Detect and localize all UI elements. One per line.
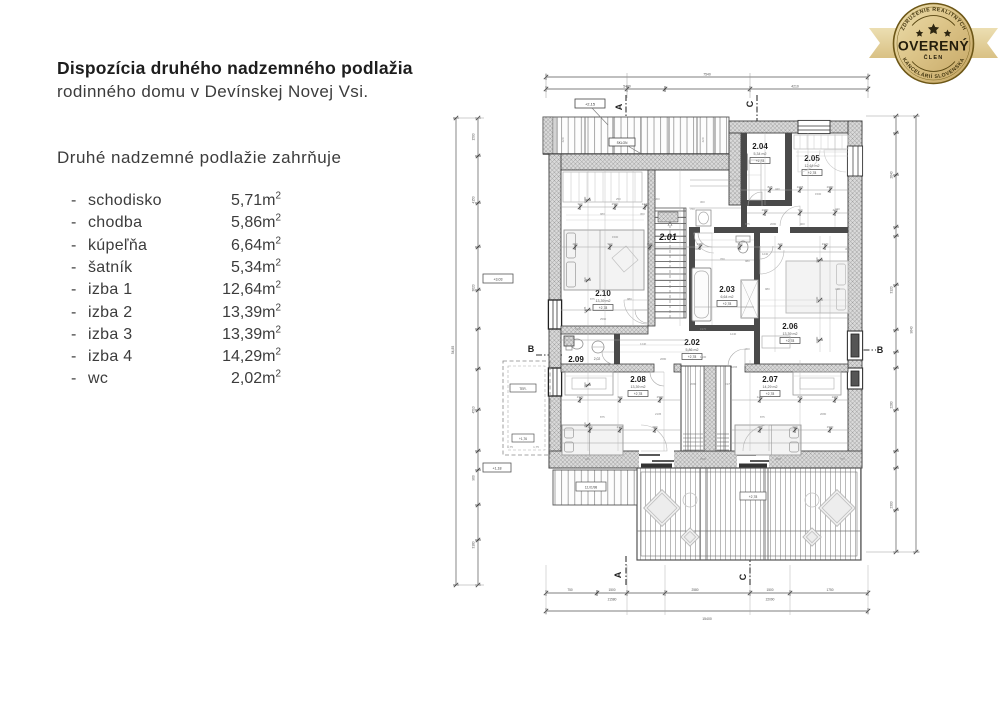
svg-text:6,64 m2: 6,64 m2 bbox=[721, 295, 734, 299]
svg-text:5,86 m2: 5,86 m2 bbox=[686, 348, 699, 352]
svg-text:440: 440 bbox=[835, 287, 840, 291]
svg-text:440: 440 bbox=[585, 457, 590, 461]
svg-text:C: C bbox=[745, 100, 755, 107]
svg-text:1240: 1240 bbox=[640, 342, 647, 346]
svg-text:2080: 2080 bbox=[770, 222, 777, 226]
svg-text:1750: 1750 bbox=[826, 588, 833, 592]
svg-text:+2,78: +2,78 bbox=[756, 159, 765, 163]
svg-text:300: 300 bbox=[700, 200, 705, 204]
svg-text:875: 875 bbox=[590, 297, 595, 301]
svg-text:+2,78: +2,78 bbox=[723, 302, 732, 306]
svg-text:2080: 2080 bbox=[690, 382, 697, 386]
svg-text:300: 300 bbox=[617, 395, 622, 399]
svg-text:2.01: 2.01 bbox=[658, 232, 677, 242]
svg-text:960: 960 bbox=[472, 475, 476, 481]
svg-text:875: 875 bbox=[745, 222, 750, 226]
svg-text:2680: 2680 bbox=[827, 185, 834, 189]
svg-text:1500: 1500 bbox=[608, 588, 615, 592]
svg-text:1970: 1970 bbox=[577, 395, 584, 399]
svg-text:4510: 4510 bbox=[472, 406, 476, 413]
svg-text:13,39 m2: 13,39 m2 bbox=[596, 299, 611, 303]
svg-text:TER.: TER. bbox=[519, 387, 526, 391]
svg-text:980: 980 bbox=[627, 297, 632, 301]
svg-text:250: 250 bbox=[572, 242, 577, 246]
svg-text:4210: 4210 bbox=[791, 85, 799, 89]
svg-text:2.09: 2.09 bbox=[568, 355, 584, 364]
svg-text:900: 900 bbox=[800, 222, 805, 226]
svg-text:2280: 2280 bbox=[890, 401, 894, 408]
svg-text:+2,78: +2,78 bbox=[688, 355, 697, 359]
svg-text:SKLON: SKLON bbox=[617, 141, 629, 145]
svg-text:+1,18: +1,18 bbox=[492, 467, 501, 471]
svg-text:1500: 1500 bbox=[766, 588, 773, 592]
svg-text:15400: 15400 bbox=[702, 617, 712, 621]
svg-text:2105: 2105 bbox=[583, 306, 587, 313]
svg-text:4150: 4150 bbox=[472, 196, 476, 203]
svg-text:1240: 1240 bbox=[757, 395, 764, 399]
svg-text:875: 875 bbox=[760, 415, 765, 419]
svg-text:1970: 1970 bbox=[725, 382, 732, 386]
svg-text:2680: 2680 bbox=[583, 196, 587, 203]
svg-text:2.07: 2.07 bbox=[762, 375, 778, 384]
svg-text:2080: 2080 bbox=[775, 457, 782, 461]
svg-text:1240: 1240 bbox=[575, 327, 582, 331]
svg-text:300: 300 bbox=[845, 247, 850, 251]
svg-text:2105: 2105 bbox=[617, 425, 624, 429]
svg-text:2590: 2590 bbox=[657, 395, 664, 399]
svg-text:760: 760 bbox=[720, 257, 725, 261]
svg-text:5,34 m2: 5,34 m2 bbox=[754, 152, 767, 156]
svg-text:300: 300 bbox=[655, 197, 660, 201]
svg-text:980: 980 bbox=[600, 212, 605, 216]
svg-text:1500: 1500 bbox=[827, 425, 834, 429]
svg-text:13,39 m2: 13,39 m2 bbox=[631, 385, 646, 389]
svg-text:440: 440 bbox=[835, 207, 840, 211]
svg-text:760: 760 bbox=[840, 457, 845, 461]
svg-text:21580: 21580 bbox=[608, 598, 617, 602]
svg-text:14,29 m2: 14,29 m2 bbox=[763, 385, 778, 389]
svg-text:+2,78: +2,78 bbox=[599, 306, 608, 310]
svg-text:+2,15: +2,15 bbox=[585, 102, 596, 107]
svg-text:1065: 1065 bbox=[731, 365, 738, 369]
svg-text:2640: 2640 bbox=[890, 171, 894, 178]
svg-text:12,64 m2: 12,64 m2 bbox=[805, 164, 820, 168]
svg-text:1500: 1500 bbox=[472, 133, 476, 140]
svg-text:980: 980 bbox=[583, 382, 587, 387]
svg-text:7540: 7540 bbox=[703, 73, 711, 77]
svg-text:150: 150 bbox=[583, 277, 587, 282]
svg-text:1500: 1500 bbox=[612, 235, 619, 239]
svg-text:2105: 2105 bbox=[655, 412, 662, 416]
svg-text:22090: 22090 bbox=[766, 598, 775, 602]
svg-text:2,02: 2,02 bbox=[594, 357, 601, 361]
svg-text:+2,78: +2,78 bbox=[808, 171, 817, 175]
svg-text:A: A bbox=[614, 103, 624, 110]
svg-text:B: B bbox=[528, 344, 535, 354]
svg-text:54,85: 54,85 bbox=[451, 346, 455, 355]
svg-text:2.04: 2.04 bbox=[752, 142, 768, 151]
svg-text:C: C bbox=[738, 573, 748, 580]
svg-text:2080: 2080 bbox=[762, 208, 769, 212]
svg-text:+2,78: +2,78 bbox=[766, 392, 775, 396]
svg-text:1240: 1240 bbox=[762, 252, 769, 256]
svg-text:440: 440 bbox=[777, 242, 782, 246]
svg-text:+2,78: +2,78 bbox=[749, 495, 758, 499]
svg-text:2300: 2300 bbox=[890, 501, 894, 508]
svg-text:1500: 1500 bbox=[700, 355, 707, 359]
svg-text:1240: 1240 bbox=[730, 332, 737, 336]
svg-text:2590: 2590 bbox=[600, 317, 607, 321]
svg-text:1500: 1500 bbox=[647, 242, 654, 246]
svg-text:1240: 1240 bbox=[642, 202, 649, 206]
svg-text:420: 420 bbox=[701, 137, 705, 142]
svg-text:1,75: 1,75 bbox=[507, 445, 513, 449]
svg-text:150: 150 bbox=[587, 425, 592, 429]
svg-text:B: B bbox=[877, 345, 884, 355]
svg-text:+2,78: +2,78 bbox=[634, 392, 643, 396]
svg-text:1065: 1065 bbox=[797, 185, 804, 189]
svg-text:2.08: 2.08 bbox=[630, 375, 646, 384]
svg-text:12,01/98: 12,01/98 bbox=[585, 486, 598, 490]
svg-text:250: 250 bbox=[616, 197, 621, 201]
svg-text:900: 900 bbox=[607, 242, 612, 246]
svg-text:2080: 2080 bbox=[815, 336, 819, 343]
svg-text:1,75: 1,75 bbox=[533, 445, 539, 449]
svg-text:+3,03: +3,03 bbox=[493, 278, 502, 282]
svg-text:2.06: 2.06 bbox=[782, 322, 798, 331]
svg-text:1970: 1970 bbox=[700, 327, 707, 331]
svg-text:2.02: 2.02 bbox=[684, 338, 700, 347]
svg-text:+1,76: +1,76 bbox=[519, 437, 527, 441]
svg-text:1970: 1970 bbox=[822, 242, 829, 246]
svg-text:980: 980 bbox=[765, 287, 770, 291]
svg-text:1065: 1065 bbox=[832, 395, 839, 399]
svg-text:2580: 2580 bbox=[691, 588, 698, 592]
svg-text:2080: 2080 bbox=[697, 242, 704, 246]
svg-text:A: A bbox=[613, 571, 623, 578]
svg-text:9640: 9640 bbox=[910, 326, 914, 333]
svg-text:750: 750 bbox=[567, 588, 573, 592]
svg-text:760: 760 bbox=[797, 208, 802, 212]
svg-text:OVERENÝ: OVERENÝ bbox=[898, 37, 970, 54]
svg-text:875: 875 bbox=[600, 415, 605, 419]
svg-text:760: 760 bbox=[737, 242, 742, 246]
svg-text:2.05: 2.05 bbox=[804, 154, 820, 163]
svg-text:300: 300 bbox=[745, 347, 750, 351]
svg-text:980: 980 bbox=[652, 425, 657, 429]
svg-text:250: 250 bbox=[757, 425, 762, 429]
svg-text:13,39 m2: 13,39 m2 bbox=[783, 332, 798, 336]
svg-text:980: 980 bbox=[745, 259, 750, 263]
svg-text:420: 420 bbox=[561, 137, 565, 142]
svg-text:3120: 3120 bbox=[890, 286, 894, 293]
svg-text:900: 900 bbox=[815, 257, 819, 262]
svg-text:900: 900 bbox=[792, 425, 797, 429]
svg-text:250: 250 bbox=[583, 422, 587, 427]
svg-text:2080: 2080 bbox=[820, 412, 827, 416]
svg-text:1500: 1500 bbox=[815, 192, 822, 196]
svg-text:300: 300 bbox=[640, 212, 645, 216]
svg-text:2590: 2590 bbox=[700, 457, 707, 461]
svg-text:760: 760 bbox=[690, 207, 695, 211]
svg-text:900: 900 bbox=[695, 247, 700, 251]
svg-text:3620: 3620 bbox=[472, 284, 476, 291]
svg-text:440: 440 bbox=[775, 187, 780, 191]
svg-text:ČLEN: ČLEN bbox=[924, 54, 944, 61]
svg-text:2590: 2590 bbox=[612, 202, 619, 206]
svg-text:2680: 2680 bbox=[660, 357, 667, 361]
svg-text:875: 875 bbox=[767, 185, 772, 189]
svg-text:3180: 3180 bbox=[472, 541, 476, 548]
svg-text:875: 875 bbox=[797, 395, 802, 399]
svg-text:2.03: 2.03 bbox=[719, 285, 735, 294]
